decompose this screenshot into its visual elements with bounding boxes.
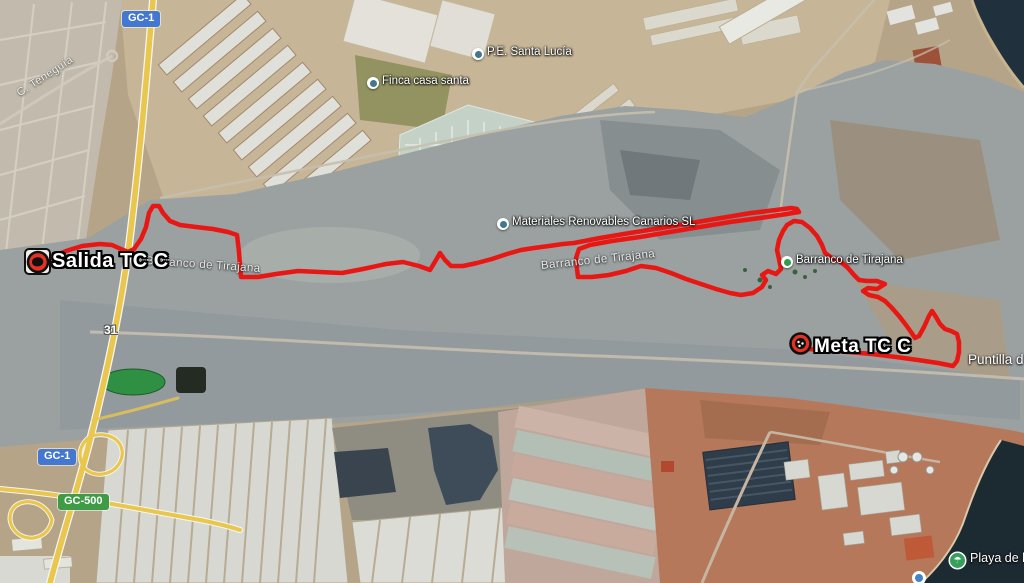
finish-marker-icon[interactable] [788, 331, 813, 356]
finish-marker-symbol [788, 331, 813, 356]
start-marker-icon[interactable] [24, 248, 52, 276]
map-canvas[interactable] [0, 0, 1024, 583]
start-marker-symbol [24, 248, 52, 276]
poi-dot-pe-santa-lucia[interactable] [472, 48, 484, 60]
beach-icon[interactable]: ☂ [950, 553, 965, 568]
poi-dot-barranco[interactable] [781, 256, 793, 268]
poi-dot-finca-casa-santa[interactable] [367, 77, 379, 89]
poi-dot-bottom-edge[interactable] [912, 571, 926, 583]
satellite-map[interactable]: GC-1 GC-1 GC-500 C. Teneguía 31 P.E. San… [0, 0, 1024, 583]
poi-dot-materiales[interactable] [497, 218, 509, 230]
